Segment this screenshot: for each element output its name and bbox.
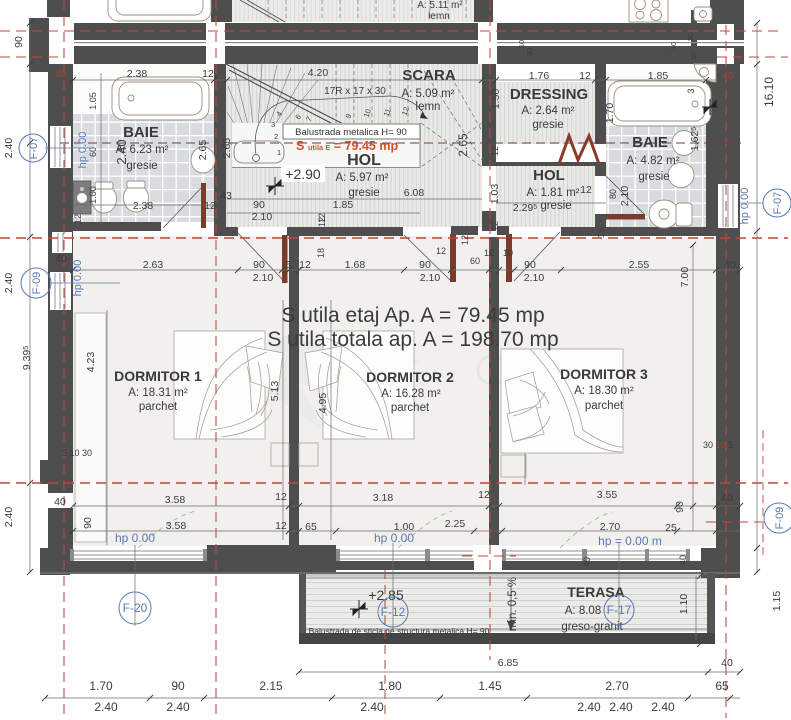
svg-text:10: 10 [517,40,526,48]
svg-text:40: 40 [721,492,733,504]
svg-text:hp 0.00: hp 0.00 [115,531,155,545]
svg-text:12: 12 [299,259,311,271]
svg-text:2.40: 2.40 [609,700,633,714]
svg-text:3.18: 3.18 [373,492,394,504]
svg-text:A: 8.08: A: 8.08 [565,605,601,617]
svg-text:90: 90 [253,199,265,211]
svg-text:40: 40 [582,557,592,567]
svg-text:12: 12 [478,489,490,501]
svg-text:30: 30 [689,52,698,60]
svg-text:12: 12 [579,70,591,82]
svg-text:1.15: 1.15 [771,591,783,612]
svg-text:A: 5.97 m²: A: 5.97 m² [335,172,388,184]
svg-text:2.40: 2.40 [3,273,15,294]
svg-text:40: 40 [678,555,688,565]
svg-text:2.38: 2.38 [127,68,148,80]
svg-text:3.55: 3.55 [597,489,618,501]
svg-text:hp 0.00: hp 0.00 [72,260,84,297]
svg-text:2.40: 2.40 [94,700,118,714]
svg-text:2.38: 2.38 [133,200,154,212]
svg-text:A: 18.31 m²: A: 18.31 m² [128,387,188,399]
svg-text:5: 5 [285,259,291,271]
svg-text:4.95: 4.95 [317,393,329,414]
svg-text:2.40: 2.40 [360,700,384,714]
svg-text:6.08: 6.08 [404,187,425,199]
svg-text:3: 3 [271,120,275,129]
svg-text:12: 12 [317,217,327,227]
svg-text:4.23: 4.23 [85,352,97,373]
svg-text:12: 12 [490,221,500,231]
svg-text:1.80: 1.80 [378,679,402,693]
svg-text:40: 40 [55,253,67,265]
svg-text:DORMITOR 1: DORMITOR 1 [114,368,202,384]
svg-text:90: 90 [419,259,431,271]
svg-text:Balustrada metalica H= 90: Balustrada metalica H= 90 [295,127,407,138]
svg-text:2.40: 2.40 [577,700,601,714]
svg-text:40: 40 [724,259,736,271]
svg-text:3.58: 3.58 [166,520,187,532]
svg-text:40: 40 [722,70,734,82]
svg-text:90: 90 [524,259,536,271]
svg-text:90: 90 [253,259,265,271]
svg-text:17R x 17 x 30: 17R x 17 x 30 [324,86,386,97]
svg-text:hp 0.00: hp 0.00 [374,531,414,545]
svg-text:2.65: 2.65 [197,140,209,161]
svg-text:2.40: 2.40 [3,138,15,159]
svg-text:2.63: 2.63 [143,259,164,271]
svg-text:F-07: F-07 [772,192,784,215]
svg-text:2.40: 2.40 [3,507,15,528]
svg-text:4.20: 4.20 [308,67,329,79]
svg-text:60: 60 [88,147,98,157]
svg-text:90: 90 [674,501,686,513]
svg-text:40: 40 [54,496,66,508]
svg-text:12: 12 [490,146,500,156]
svg-text:12: 12 [460,235,470,245]
svg-text:A: 2.64 m²: A: 2.64 m² [521,105,574,117]
svg-text:1: 1 [277,148,281,157]
svg-text:5.13: 5.13 [269,381,281,402]
svg-text:A: 5.11 m²: A: 5.11 m² [417,0,463,11]
svg-text:2.65: 2.65 [221,138,233,159]
svg-text:BAIE: BAIE [123,124,159,141]
svg-text:gresie: gresie [540,200,571,212]
svg-text:90: 90 [171,679,185,693]
svg-text:F-07: F-07 [28,137,40,160]
svg-text:2.65: 2.65 [456,133,470,157]
svg-text:10: 10 [503,248,513,258]
svg-text:lemn: lemn [416,101,441,113]
svg-text:2.10: 2.10 [524,272,545,284]
svg-text:gresie: gresie [532,119,563,131]
svg-text:F-17: F-17 [607,603,632,617]
svg-text:2.70: 2.70 [605,679,629,693]
svg-text:S utila etaj Ap. A = 79.45 mp: S utila etaj Ap. A = 79.45 mp [281,304,544,327]
svg-text:80: 80 [608,189,618,199]
svg-text:+2.90: +2.90 [285,166,321,182]
svg-text:2.70: 2.70 [600,521,621,533]
svg-text:40: 40 [721,657,733,669]
svg-text:HOL: HOL [533,167,565,184]
svg-text:3.58: 3.58 [165,494,186,506]
svg-text:A: 5.09 m²: A: 5.09 m² [401,88,454,100]
svg-text:DORMITOR 2: DORMITOR 2 [366,369,454,385]
svg-text:3: 3 [686,88,696,93]
svg-text:65: 65 [305,521,317,533]
svg-text:12: 12 [73,214,83,224]
svg-text:16.10: 16.10 [762,77,776,107]
svg-text:parchet: parchet [585,400,624,412]
svg-text:2: 2 [274,132,278,141]
svg-text:5 10 30: 5 10 30 [62,448,92,458]
svg-text:2.10: 2.10 [253,272,274,284]
svg-text:12: 12 [484,248,494,258]
svg-text:30 10 5: 30 10 5 [703,440,733,450]
svg-text:TERASA: TERASA [567,584,625,600]
svg-text:2.40: 2.40 [651,700,675,714]
svg-text:1.76: 1.76 [529,70,550,82]
svg-text:2.25: 2.25 [445,518,466,530]
svg-text:30: 30 [686,33,695,41]
svg-text:12: 12 [275,491,287,503]
svg-text:+2.85: +2.85 [368,587,404,603]
svg-text:gresie: gresie [638,171,669,183]
svg-text:10: 10 [669,42,678,50]
svg-text:1.50: 1.50 [490,89,502,110]
svg-text:12: 12 [275,520,287,532]
svg-text:18: 18 [316,248,326,258]
svg-text:2.40: 2.40 [166,700,190,714]
svg-text:1.45: 1.45 [478,679,502,693]
svg-text:parchet: parchet [139,401,178,413]
svg-text:1.68: 1.68 [345,259,366,271]
svg-text:F-09: F-09 [31,272,43,295]
svg-text:2.15: 2.15 [259,679,283,693]
svg-text:hp 0.00: hp 0.00 [739,188,751,225]
svg-text:parchet: parchet [391,402,430,414]
svg-text:12: 12 [204,200,216,212]
svg-text:greso-granit: greso-granit [561,621,623,633]
svg-text:SCARA: SCARA [402,67,456,84]
svg-text:gresie: gresie [126,160,157,172]
svg-text:2.10: 2.10 [619,186,631,207]
svg-text:F-20: F-20 [123,601,148,615]
svg-text:1.10: 1.10 [678,594,690,615]
svg-text:90: 90 [13,36,25,48]
svg-text:lemn: lemn [428,11,450,22]
svg-text:65: 65 [715,679,729,693]
svg-text:1.70: 1.70 [604,103,616,124]
svg-text:6.85: 6.85 [498,657,519,669]
svg-text:2.10: 2.10 [420,272,441,284]
svg-text:1.00: 1.00 [88,186,98,204]
svg-text:S utila totala ap. A = 198.70: S utila totala ap. A = 198.70 mp [267,328,558,351]
svg-text:A: 16.28 m²: A: 16.28 m² [381,388,441,400]
svg-text:30: 30 [525,48,534,56]
svg-text:A: 1.81 m²: A: 1.81 m² [526,187,579,199]
svg-text:90: 90 [82,517,94,529]
svg-text:BAIE: BAIE [632,134,668,151]
svg-text:12: 12 [436,246,446,256]
svg-text:HOL: HOL [347,152,381,169]
svg-text:12: 12 [580,184,592,196]
svg-text:DORMITOR 3: DORMITOR 3 [560,366,648,382]
svg-text:hp 0.00: hp 0.00 [77,132,89,169]
svg-text:1.03: 1.03 [489,184,501,205]
svg-text:40: 40 [55,68,67,80]
svg-text:43: 43 [220,190,232,202]
svg-text:DRESSING: DRESSING [510,86,588,103]
svg-text:F-12: F-12 [381,605,406,619]
svg-text:A: 6.23 m²: A: 6.23 m² [115,144,168,156]
svg-text:1.70: 1.70 [89,679,113,693]
svg-text:1.85: 1.85 [333,199,354,211]
svg-text:A: 4.82 m²: A: 4.82 m² [626,155,679,167]
svg-text:1.85: 1.85 [648,70,669,82]
svg-text:A: 18.30 m²: A: 18.30 m² [574,385,634,397]
svg-text:2.10: 2.10 [252,211,273,223]
svg-text:15: 15 [596,228,606,238]
svg-text:12: 12 [202,68,214,80]
svg-text:7.00: 7.00 [679,267,691,288]
svg-text:2.55: 2.55 [629,259,650,271]
svg-text:Balustrada de sticla pe struct: Balustrada de sticla pe structura metali… [309,626,490,636]
svg-text:25: 25 [665,522,677,534]
svg-text:60: 60 [470,256,480,266]
svg-text:gresie: gresie [348,187,379,199]
svg-text:F-09: F-09 [774,507,786,530]
svg-text:1.05: 1.05 [88,92,98,110]
svg-text:hp = 0.00 m: hp = 0.00 m [598,534,662,548]
